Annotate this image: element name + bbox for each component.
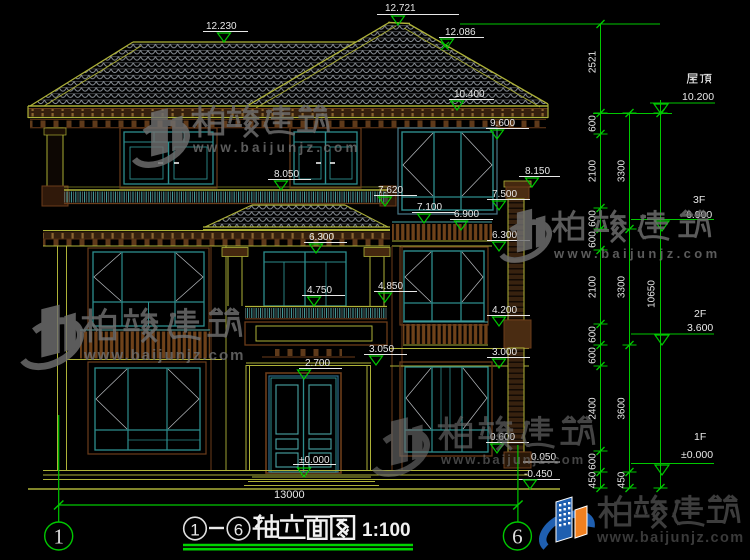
svg-text:www.baijunjz.com: www.baijunjz.com [440,452,585,467]
svg-text:2F: 2F [694,308,706,320]
svg-text:2100: 2100 [588,275,599,298]
svg-text:13000: 13000 [274,489,305,501]
svg-text:10650: 10650 [647,280,658,308]
svg-text:3F: 3F [693,194,705,206]
svg-text:8.050: 8.050 [274,169,299,180]
svg-text:450: 450 [588,471,599,488]
svg-text:1: 1 [190,521,199,540]
svg-text:10.200: 10.200 [682,91,714,103]
svg-text:www.baijunjz.com: www.baijunjz.com [83,347,245,364]
svg-text:3300: 3300 [617,159,628,182]
svg-text:450: 450 [617,471,628,488]
svg-text:2.700: 2.700 [305,358,330,369]
svg-text:1F: 1F [694,431,706,443]
svg-text:3.050: 3.050 [369,344,394,355]
svg-text:3300: 3300 [617,275,628,298]
svg-text:±0.000: ±0.000 [681,449,713,461]
svg-text:2100: 2100 [588,159,599,182]
svg-text:-0.450: -0.450 [524,469,553,480]
svg-text:4.750: 4.750 [307,285,332,296]
svg-text:7.100: 7.100 [417,202,442,213]
svg-text:600: 600 [588,115,599,132]
svg-text:1:100: 1:100 [362,520,411,541]
svg-text:3.600: 3.600 [687,322,713,334]
svg-text:3600: 3600 [617,397,628,420]
svg-text:10.400: 10.400 [454,89,485,100]
svg-text:600: 600 [588,326,599,343]
svg-text:2521: 2521 [588,50,599,73]
svg-text:2400: 2400 [588,397,599,420]
svg-text:4.850: 4.850 [378,281,403,292]
svg-text:600: 600 [588,453,599,470]
svg-text:12.721: 12.721 [385,3,416,14]
svg-text:1: 1 [53,525,64,549]
svg-text:9.600: 9.600 [490,118,515,129]
svg-text:8.150: 8.150 [525,166,550,177]
svg-text:www.baijunjz.com: www.baijunjz.com [596,530,745,546]
svg-text:12.086: 12.086 [445,27,476,38]
svg-text:www.baijunjz.com: www.baijunjz.com [192,140,361,155]
svg-text:6: 6 [512,525,523,549]
svg-text:6.900: 6.900 [454,209,479,220]
svg-text:7.500: 7.500 [492,189,517,200]
svg-text:12.230: 12.230 [206,21,237,32]
svg-text:6.300: 6.300 [309,232,334,243]
svg-text:www.baijunjz.com: www.baijunjz.com [553,246,721,261]
svg-text:6: 6 [234,521,243,540]
svg-text:7.620: 7.620 [378,185,403,196]
svg-text:4.200: 4.200 [492,305,517,316]
svg-text:3.000: 3.000 [492,347,517,358]
svg-text:600: 600 [588,347,599,364]
